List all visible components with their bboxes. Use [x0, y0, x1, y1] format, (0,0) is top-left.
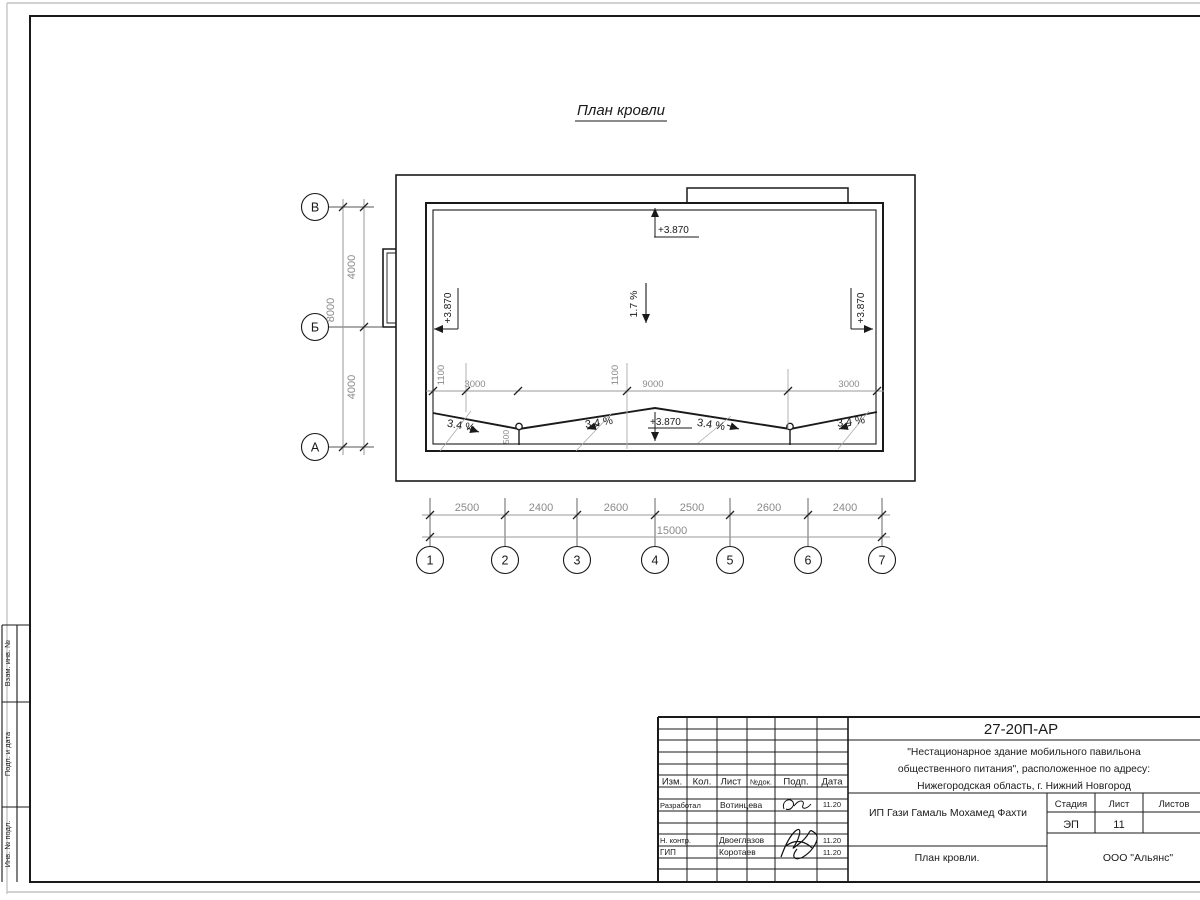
- drawing-sheet: Взам. инв. № Подп. и дата Инв. № подл. П…: [0, 0, 1200, 900]
- left-vestibule-inner: [387, 253, 396, 323]
- dim-left-seg-1: 4000: [346, 255, 358, 279]
- axis-label-row-b: Б: [311, 321, 319, 335]
- tb-name-developer: Вотинцева: [720, 800, 762, 810]
- tb-header-data: Дата: [821, 777, 843, 788]
- axis-label-row-v: В: [311, 201, 319, 215]
- tb-header-ndok: №док.: [750, 778, 772, 787]
- signature-developer: [783, 800, 811, 810]
- tb-project-line2: общественного питания", расположенное по…: [898, 763, 1150, 775]
- axis-label-col-7: 7: [879, 554, 886, 568]
- dim-bottom-seg-6: 2400: [833, 502, 857, 514]
- tb-name-gip: Коротаев: [719, 847, 756, 857]
- tb-project-line1: "Нестационарное здание мобильного павиль…: [907, 746, 1141, 758]
- dim-drain-500: 500: [501, 430, 511, 444]
- roof-plan-drawing: Взам. инв. № Подп. и дата Инв. № подл. П…: [0, 0, 1200, 900]
- dim-left-total: 8000: [325, 298, 337, 322]
- side-stamp: Взам. инв. № Подп. и дата Инв. № подл.: [2, 625, 30, 882]
- dim-bottom-seg-3: 2600: [604, 502, 628, 514]
- tb-header-kol: Кол.: [693, 777, 712, 788]
- tb-role-developer: Разработал: [660, 801, 701, 810]
- dim-mid-3000a: 3000: [464, 379, 485, 390]
- tb-header-podp: Подп.: [783, 777, 808, 788]
- axis-label-col-2: 2: [502, 554, 509, 568]
- dim-mid-3000b: 3000: [838, 379, 859, 390]
- drawing-title: План кровли: [575, 102, 667, 121]
- elevation-center: +3.870: [650, 417, 681, 428]
- elevation-marks: +3.870 +3.870 +3.870 +3.870: [434, 208, 873, 441]
- slope-marks: 1.7 % 3.4 % 3.4 % 3.4 % 3.4 %: [446, 283, 866, 434]
- grid-axes-left: В Б А 4000 4000 8000: [302, 194, 384, 461]
- tb-name-ncontrol: Двоеглазов: [719, 835, 765, 845]
- slope-main-label: 1.7 %: [628, 291, 640, 318]
- dim-mid-9000: 9000: [642, 379, 663, 390]
- roof-outline: [383, 175, 915, 481]
- dim-left-seg-2: 4000: [346, 375, 358, 399]
- side-stamp-label-inv: Инв. № подл.: [3, 821, 12, 868]
- title-block: Изм. Кол. Лист №док. Подп. Дата Разработ…: [658, 717, 1200, 881]
- side-stamp-label-podp: Подп. и дата: [3, 731, 12, 776]
- dim-mid-1100a: 1100: [436, 365, 447, 385]
- elevation-right: +3.870: [856, 292, 867, 323]
- tb-header-izm: Изм.: [662, 777, 682, 788]
- top-canopy: [687, 188, 848, 203]
- dim-bottom-total: 15000: [657, 525, 688, 537]
- dim-bottom-seg-5: 2600: [757, 502, 781, 514]
- tb-sheet-name: План кровли.: [915, 852, 980, 864]
- axis-label-col-1: 1: [427, 554, 434, 568]
- roof-drain-1: [516, 423, 522, 429]
- dim-bottom-seg-4: 2500: [680, 502, 704, 514]
- tb-sheet-label: Лист: [1109, 799, 1130, 810]
- tb-date-gip: 11.20: [823, 848, 841, 857]
- elevation-top: +3.870: [658, 225, 689, 236]
- elevation-left: +3.870: [443, 292, 454, 323]
- tb-stage-value: ЭП: [1063, 819, 1079, 831]
- axis-label-col-6: 6: [805, 554, 812, 568]
- axis-label-col-4: 4: [652, 554, 659, 568]
- side-stamp-label-vzam: Взам. инв. №: [3, 640, 12, 686]
- tb-client: ИП Гази Гамаль Мохамед Фахти: [869, 807, 1027, 819]
- tb-role-ncontrol: Н. контр.: [660, 836, 691, 845]
- drawing-title-text: План кровли: [577, 102, 666, 119]
- tb-sheets-label: Листов: [1159, 799, 1190, 810]
- tb-project-line3: Нижегородская область, г. Нижний Новгоро…: [917, 780, 1131, 792]
- left-vestibule-outer: [383, 249, 396, 327]
- axis-label-row-a: А: [311, 441, 320, 455]
- paper-edge: [7, 3, 1200, 894]
- tb-header-list: Лист: [721, 777, 742, 788]
- dim-mid-1100b: 1100: [610, 365, 621, 385]
- dim-bottom-seg-1: 2500: [455, 502, 479, 514]
- tb-role-gip: ГИП: [660, 848, 676, 857]
- tb-doc-number: 27-20П-АР: [984, 721, 1058, 738]
- dim-bottom-seg-2: 2400: [529, 502, 553, 514]
- axis-label-col-3: 3: [574, 554, 581, 568]
- slope-valley-4: 3.4 %: [836, 414, 866, 430]
- tb-stage-label: Стадия: [1055, 799, 1087, 810]
- slope-valley-3: 3.4 %: [696, 417, 726, 433]
- tb-organization: ООО "Альянс": [1103, 852, 1173, 864]
- axis-label-col-5: 5: [727, 554, 734, 568]
- grid-axes-bottom: 1 2 3 4 5 6 7 2500 2400 2600 2500 2600 2…: [417, 498, 896, 574]
- tb-sheet-value: 11: [1113, 819, 1124, 831]
- tb-date-developer: 11.20: [823, 800, 841, 809]
- tb-date-ncontrol: 11.20: [823, 836, 841, 845]
